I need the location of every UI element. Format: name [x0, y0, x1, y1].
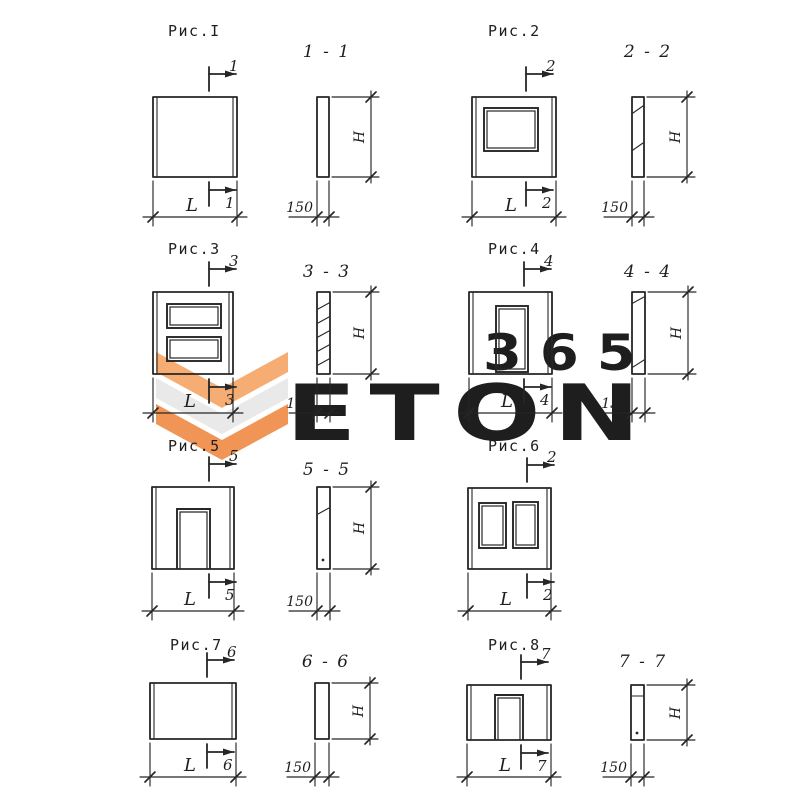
panel-front-view: [468, 488, 551, 569]
length-label: L: [185, 195, 198, 216]
thickness-dimension: 150: [286, 573, 340, 620]
thickness-label: 150: [600, 760, 627, 776]
length-label: L: [183, 391, 196, 412]
cut-mark-top: 2: [526, 57, 556, 91]
window-opening: [484, 108, 538, 151]
cut-number: 7: [537, 757, 547, 775]
thickness-label: 150: [286, 396, 313, 412]
break-line: [318, 331, 329, 337]
cut-mark-bottom: 2: [527, 574, 554, 604]
thickness-dimension: 150: [284, 743, 339, 786]
break-line: [318, 359, 329, 365]
panel-front-view: [152, 487, 234, 569]
figure-title: Рис.6: [488, 437, 541, 455]
mark-dot: [322, 559, 325, 562]
mark-dot: [636, 732, 639, 735]
height-dimension: H: [333, 481, 379, 575]
cut-mark-bottom: 2: [526, 182, 553, 212]
cut-number: 2: [541, 194, 552, 212]
cut-mark-top: 1: [209, 57, 239, 91]
thickness-dimension: 150: [601, 181, 654, 226]
section-view: 1 - 1 H 150: [286, 42, 379, 226]
opening-upper: [167, 304, 221, 328]
cut-mark-bottom: 1: [209, 182, 236, 212]
height-label: H: [669, 326, 685, 340]
cut-number: 3: [229, 252, 239, 270]
section-view: 7 - 7 H 150: [600, 652, 695, 786]
window-opening-right: [513, 502, 538, 548]
figure-title: Рис.3: [168, 240, 221, 258]
figure-5: Рис.5 5 5 L 5 - 5: [142, 437, 379, 620]
cut-mark-bottom: 7: [521, 745, 548, 775]
figure-title: Рис.8: [488, 636, 541, 654]
height-dimension: H: [648, 286, 696, 380]
section-view: 6 - 6 H 150: [284, 652, 378, 786]
figure-8: Рис.8 7 7 L 7 - 7: [457, 636, 695, 786]
length-label: L: [183, 755, 196, 776]
thickness-label: 150: [286, 200, 313, 216]
figure-1: Рис.I 1 1 L 1 - 1 H: [143, 22, 379, 226]
height-label: H: [351, 704, 367, 718]
cut-number: 6: [227, 643, 237, 661]
drawing-sheet: 365 ETON Рис.I 1 1 L 1 - 1: [0, 0, 800, 800]
thickness-dimension: 150: [286, 181, 339, 226]
section-view: 5 - 5 H 150: [286, 460, 379, 620]
break-line: [633, 143, 643, 150]
figure-title: Рис.7: [170, 636, 223, 654]
figure-title: Рис.4: [488, 240, 541, 258]
window-opening-left: [479, 503, 506, 548]
break-line: [318, 345, 329, 351]
cut-number: 1: [225, 194, 235, 212]
section-title: 4 - 4: [623, 262, 672, 282]
section-title: 7 - 7: [619, 652, 667, 672]
break-line: [318, 317, 329, 323]
cut-number: 2: [545, 57, 556, 75]
figure-6: Рис.6 2 2 L: [458, 437, 561, 620]
thickness-label: 150: [284, 760, 311, 776]
length-label: L: [498, 755, 511, 776]
opening-lower: [167, 337, 221, 361]
height-label: H: [668, 130, 684, 144]
cut-number: 2: [546, 448, 557, 466]
length-label: L: [499, 589, 512, 610]
break-line: [318, 508, 329, 514]
figure-7: Рис.7 6 6 L 6 - 6 H: [140, 636, 378, 786]
thickness-label: 150: [601, 396, 628, 412]
height-dimension: H: [332, 677, 378, 745]
section-title: 1 - 1: [303, 42, 351, 62]
length-label: L: [500, 391, 513, 412]
panel-front-view: [467, 685, 551, 740]
cut-number: 4: [539, 391, 550, 409]
length-label: L: [504, 195, 517, 216]
height-label: H: [352, 521, 368, 535]
height-dimension: H: [647, 91, 695, 183]
cut-number: 6: [223, 756, 233, 774]
cut-number: 4: [543, 252, 554, 270]
thickness-label: 150: [286, 594, 313, 610]
figure-title: Рис.5: [168, 437, 221, 455]
thickness-dimension: 150: [600, 744, 654, 786]
door-opening: [495, 695, 523, 740]
cut-number: 7: [541, 645, 551, 663]
cut-mark-bottom: 5: [209, 574, 236, 604]
figure-title: Рис.2: [488, 22, 541, 40]
section-title: 3 - 3: [303, 262, 351, 282]
height-dimension: H: [647, 679, 695, 746]
section-view: 2 - 2 H 150: [601, 42, 695, 226]
section-title: 6 - 6: [302, 652, 350, 672]
figure-title: Рис.I: [168, 22, 221, 40]
figure-2: Рис.2 2 2 L 2 - 2: [462, 22, 695, 226]
section-title: 2 - 2: [623, 42, 672, 62]
cut-number: 1: [229, 57, 239, 75]
height-dimension: H: [332, 91, 379, 183]
height-label: H: [668, 706, 684, 720]
section-title: 5 - 5: [303, 460, 351, 480]
height-dimension: H: [333, 286, 379, 380]
cut-number: 5: [229, 447, 239, 465]
panel-front-view: [153, 97, 237, 177]
panel-front-view: [150, 683, 236, 739]
length-label: L: [183, 589, 196, 610]
cut-number: 5: [225, 586, 235, 604]
thickness-label: 150: [601, 200, 628, 216]
break-line: [633, 297, 644, 303]
height-label: H: [352, 326, 368, 340]
cut-mark-bottom: 6: [207, 744, 234, 774]
door-opening: [177, 509, 210, 569]
panel-front-view: [472, 97, 556, 177]
drawing-canvas: 365 ETON Рис.I 1 1 L 1 - 1: [0, 0, 800, 800]
break-line: [633, 106, 643, 113]
height-label: H: [352, 130, 368, 144]
break-line: [318, 303, 329, 309]
